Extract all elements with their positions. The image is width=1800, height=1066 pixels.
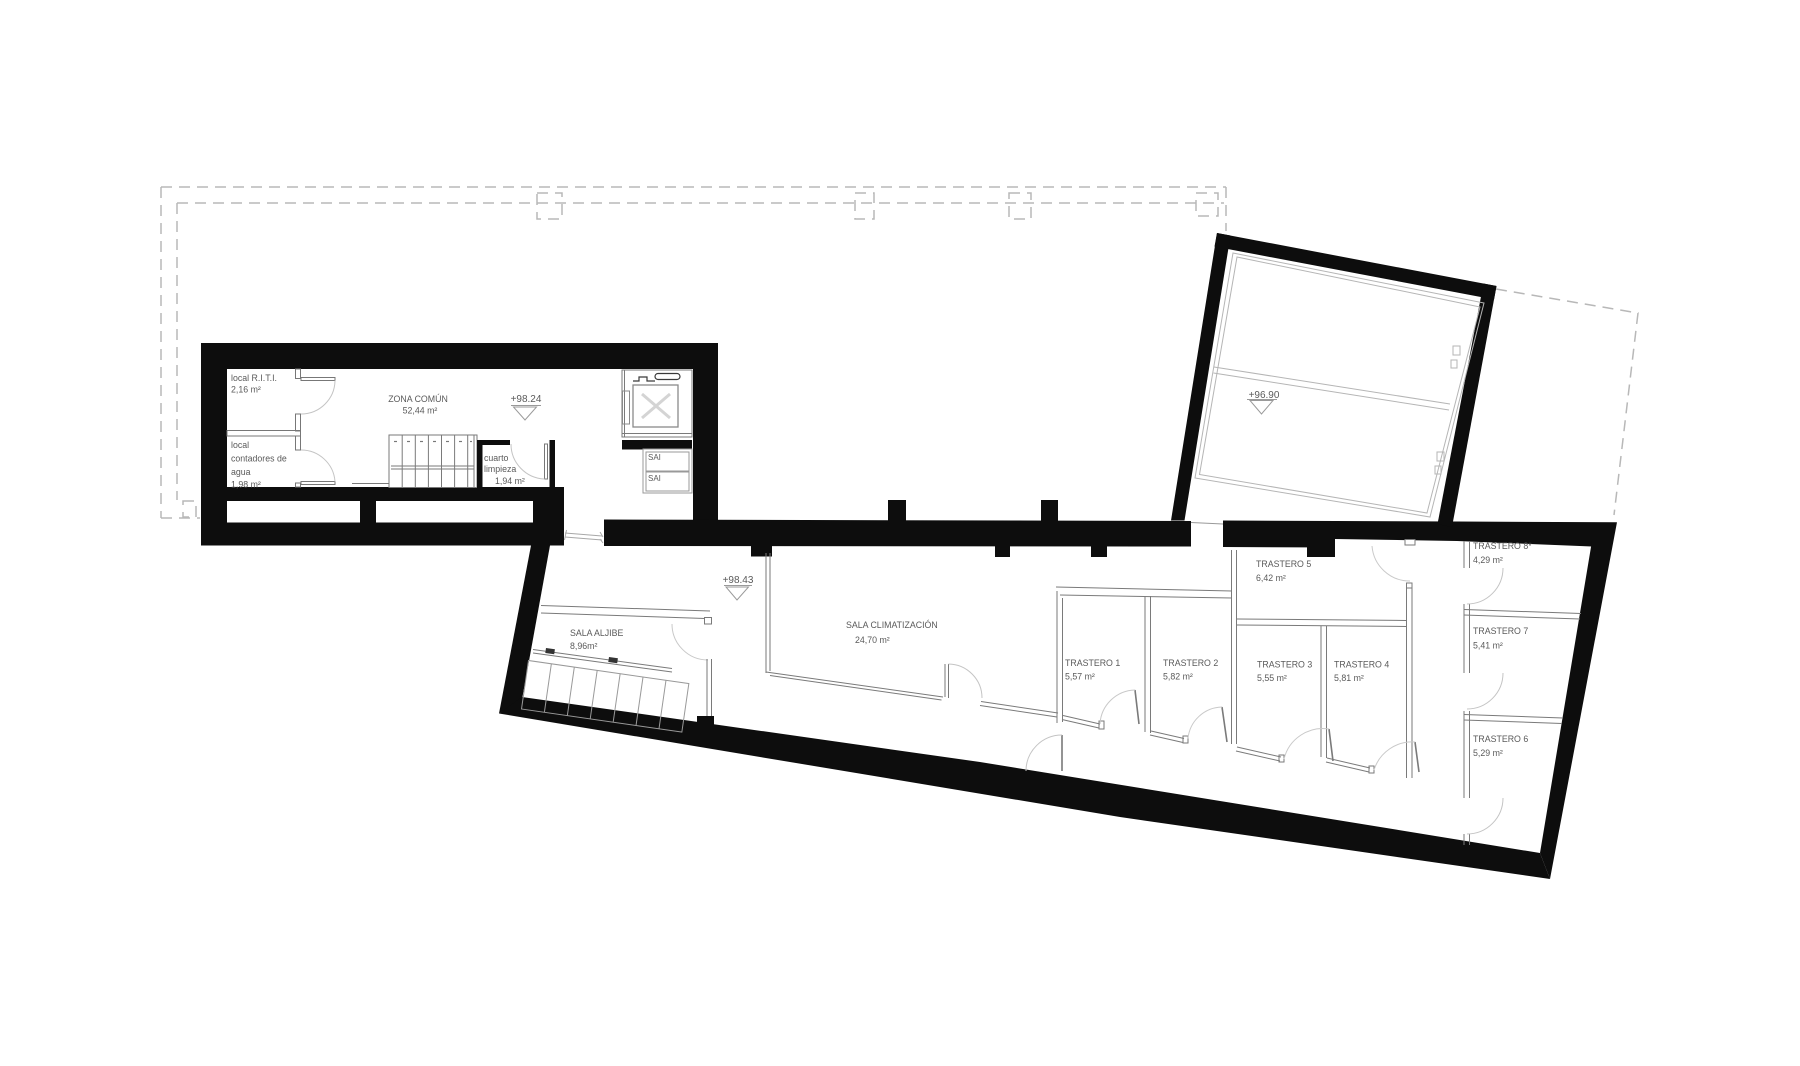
svg-text:5,82 m²: 5,82 m²	[1163, 672, 1193, 682]
svg-text:TRASTERO 8*: TRASTERO 8*	[1473, 541, 1532, 551]
svg-text:1,98 m²: 1,98 m²	[231, 480, 261, 490]
svg-text:local: local	[231, 440, 249, 450]
svg-text:ZONA COMÚN: ZONA COMÚN	[388, 394, 448, 404]
svg-text:6,42 m²: 6,42 m²	[1256, 573, 1286, 583]
svg-text:cuarto: cuarto	[484, 453, 509, 463]
svg-text:limpieza: limpieza	[484, 464, 516, 474]
svg-text:TRASTERO 3: TRASTERO 3	[1257, 660, 1312, 670]
svg-text:5,55 m²: 5,55 m²	[1257, 673, 1287, 683]
svg-text:52,44 m²: 52,44 m²	[403, 406, 438, 416]
svg-text:8,96m²: 8,96m²	[570, 641, 597, 651]
svg-text:+98.24: +98.24	[511, 394, 542, 405]
svg-text:5,57 m²: 5,57 m²	[1065, 672, 1095, 682]
svg-text:TRASTERO 1: TRASTERO 1	[1065, 658, 1120, 668]
svg-text:SAI: SAI	[648, 453, 661, 462]
svg-text:TRASTERO 6: TRASTERO 6	[1473, 734, 1528, 744]
svg-text:1,94 m²: 1,94 m²	[495, 476, 525, 486]
svg-text:agua: agua	[231, 467, 251, 477]
svg-text:+98.43: +98.43	[723, 575, 754, 586]
svg-text:5,41 m²: 5,41 m²	[1473, 641, 1503, 651]
svg-text:24,70 m²: 24,70 m²	[855, 635, 890, 645]
svg-text:SALA ALJIBE: SALA ALJIBE	[570, 628, 623, 638]
svg-text:TRASTERO 5: TRASTERO 5	[1256, 559, 1311, 569]
svg-text:TRASTERO 7: TRASTERO 7	[1473, 626, 1528, 636]
svg-text:local R.I.T.I.: local R.I.T.I.	[231, 373, 277, 383]
svg-text:SAI: SAI	[648, 474, 661, 483]
svg-text:5,81 m²: 5,81 m²	[1334, 673, 1364, 683]
svg-text:TRASTERO 2: TRASTERO 2	[1163, 658, 1218, 668]
svg-text:5,29 m²: 5,29 m²	[1473, 748, 1503, 758]
svg-text:2,16 m²: 2,16 m²	[231, 385, 261, 395]
svg-text:SALA CLIMATIZACIÓN: SALA CLIMATIZACIÓN	[846, 620, 938, 630]
svg-text:contadores de: contadores de	[231, 454, 287, 464]
svg-text:TRASTERO 4: TRASTERO 4	[1334, 660, 1389, 670]
svg-text:4,29 m²: 4,29 m²	[1473, 555, 1503, 565]
